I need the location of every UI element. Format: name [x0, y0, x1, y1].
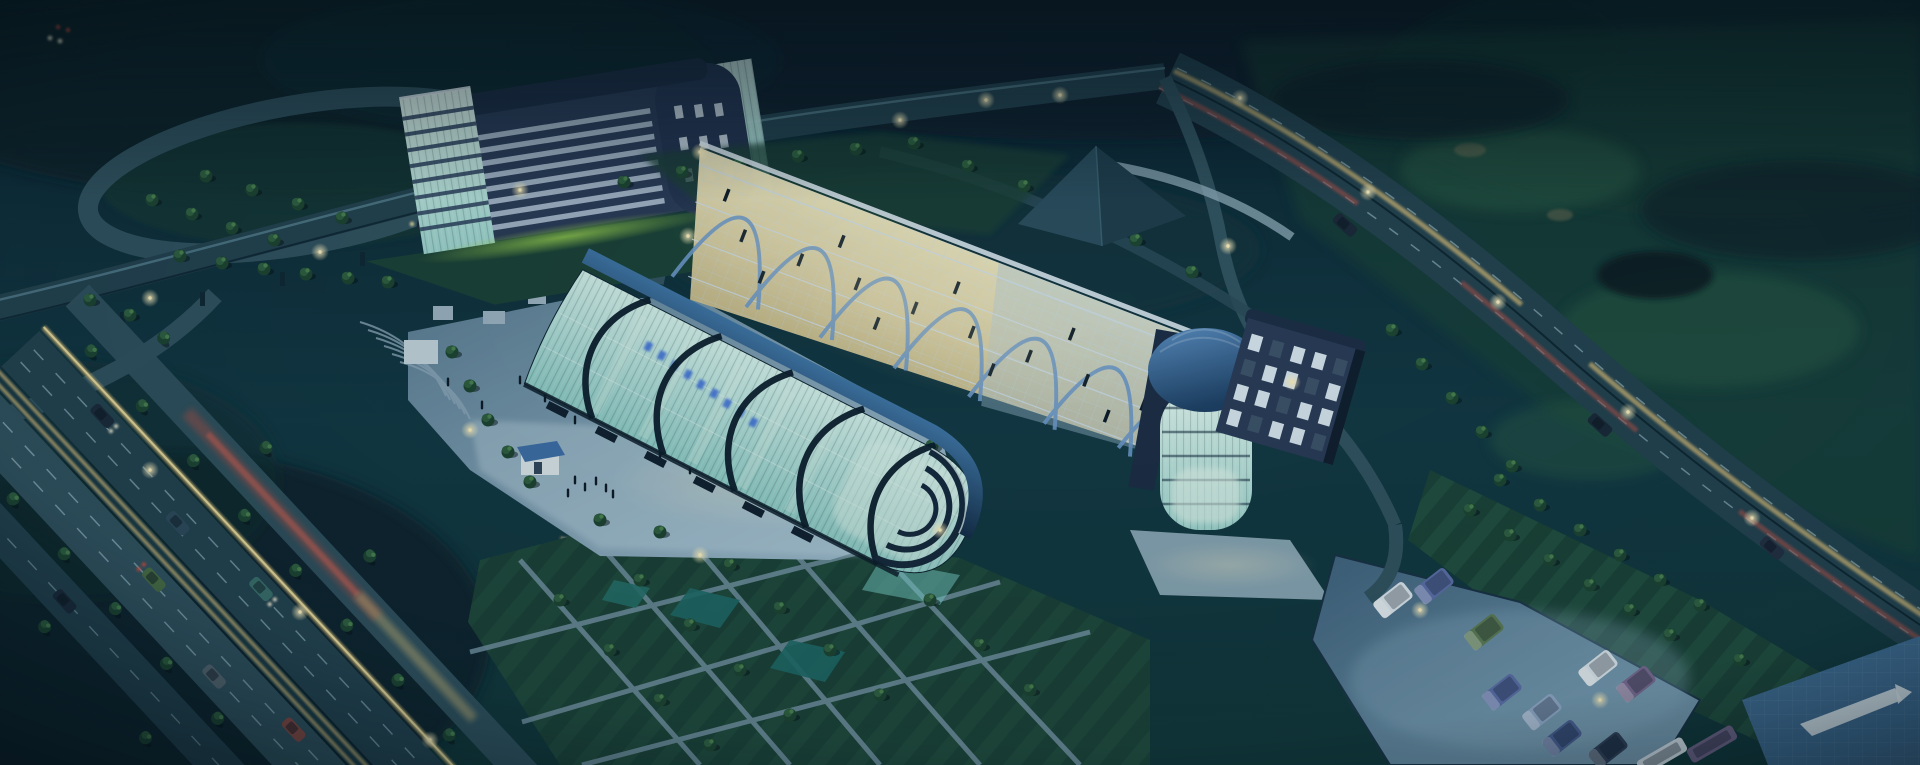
- rendering-canvas: [0, 0, 1920, 765]
- color-cast: [0, 0, 1920, 765]
- aerial-rendering: [0, 0, 1920, 765]
